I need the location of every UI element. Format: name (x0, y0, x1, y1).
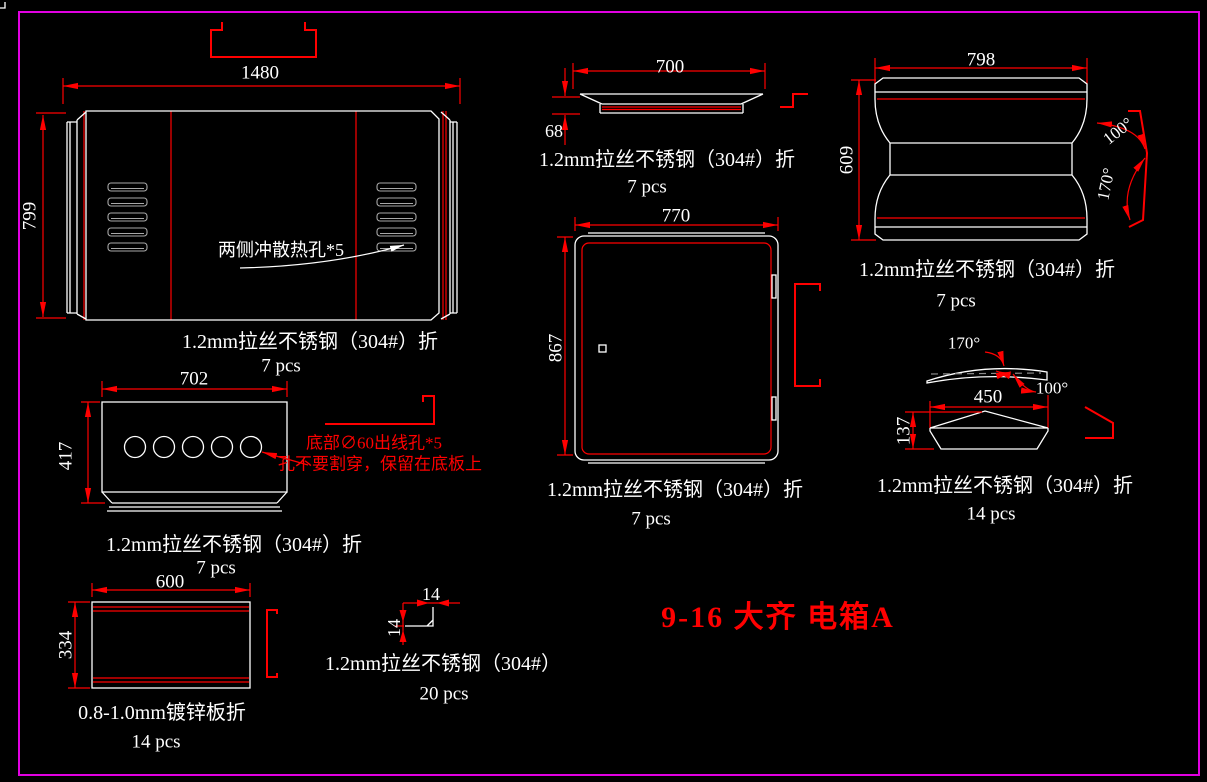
wire-hole-note-line2: 孔不要割穿，保留在底板上 (278, 456, 482, 473)
inner-box-drawing (68, 583, 277, 688)
corner-bracket-width-dim: 14 (422, 585, 440, 603)
inner-box-qty: 14 pcs (131, 733, 180, 752)
wire-hole-note-line1: 底部∅60出线孔*5 (306, 435, 442, 452)
cap-panel-width-dim: 450 (974, 388, 1003, 407)
corner-bracket-qty: 20 pcs (419, 685, 468, 704)
vent-slots-left (108, 183, 147, 251)
corner-bracket-height-dim: 14 (385, 619, 403, 637)
top-lid-height-dim: 68 (545, 122, 563, 140)
front-panel-width-dim: 1480 (241, 64, 279, 83)
bend-profile-icon (795, 284, 820, 386)
door-height-dim: 867 (547, 334, 566, 363)
front-panel-material: 1.2mm拉丝不锈钢（304#）折 (182, 332, 438, 352)
hinge-mark (772, 275, 776, 298)
centerline (931, 373, 1041, 374)
bottom-panel-qty: 7 pcs (196, 559, 236, 578)
corner-bracket-material: 1.2mm拉丝不锈钢（304#） (325, 654, 561, 674)
front-panel-qty: 7 pcs (261, 357, 301, 376)
top-lid-material: 1.2mm拉丝不锈钢（304#）折 (539, 150, 795, 170)
bottom-panel-width-dim: 702 (180, 370, 209, 389)
wire-hole (183, 437, 204, 458)
hinge-mark (772, 397, 776, 420)
bend-profile-icon (1085, 407, 1113, 438)
side-panel-drawing (851, 58, 1147, 240)
cap-panel-material: 1.2mm拉丝不锈钢（304#）折 (877, 476, 1133, 496)
cap-panel-qty: 14 pcs (966, 505, 1015, 524)
door-width-dim: 770 (662, 207, 691, 226)
top-lid-qty: 7 pcs (627, 178, 667, 197)
vent-holes-note: 两侧冲散热孔*5 (218, 241, 344, 259)
wire-hole (241, 437, 262, 458)
wire-hole (125, 437, 146, 458)
cap-panel-angle-top: 170° (948, 335, 980, 352)
inner-box-width-dim: 600 (156, 573, 185, 592)
bend-profile-icon (780, 94, 808, 107)
side-panel-material: 1.2mm拉丝不锈钢（304#）折 (859, 260, 1115, 280)
front-panel-height-dim: 799 (21, 202, 40, 231)
side-panel-height-dim: 609 (838, 146, 857, 175)
bend-profile-icon (325, 396, 434, 424)
wire-hole (154, 437, 175, 458)
corner-bracket-drawing (395, 600, 460, 646)
lock-hole (599, 345, 606, 352)
channel-profile-icon (211, 22, 316, 57)
cap-panel-height-dim: 137 (895, 417, 914, 446)
door-drawing (557, 217, 820, 463)
cad-drawing-canvas[interactable]: 1480 799 两侧冲散热孔*5 1.2mm拉丝不锈钢（304#）折 7 pc… (0, 0, 1207, 782)
cap-panel-drawing (905, 352, 1113, 449)
vent-slots-right (377, 183, 416, 251)
inner-box-height-dim: 334 (57, 631, 76, 660)
side-panel-width-dim: 798 (967, 51, 996, 70)
inner-box-material: 0.8-1.0mm镀锌板折 (78, 703, 246, 723)
bend-profile-icon (267, 610, 277, 677)
door-material: 1.2mm拉丝不锈钢（304#）折 (547, 480, 803, 500)
cad-linework (0, 0, 1207, 782)
cap-panel-angle-side: 100° (1036, 380, 1068, 397)
bottom-panel-material: 1.2mm拉丝不锈钢（304#）折 (106, 535, 362, 555)
door-qty: 7 pcs (631, 510, 671, 529)
wire-hole (212, 437, 233, 458)
side-panel-qty: 7 pcs (936, 292, 976, 311)
top-lid-width-dim: 700 (656, 58, 685, 77)
drawing-title: 9-16 大齐 电箱A (661, 603, 895, 633)
bottom-panel-height-dim: 417 (57, 442, 76, 471)
